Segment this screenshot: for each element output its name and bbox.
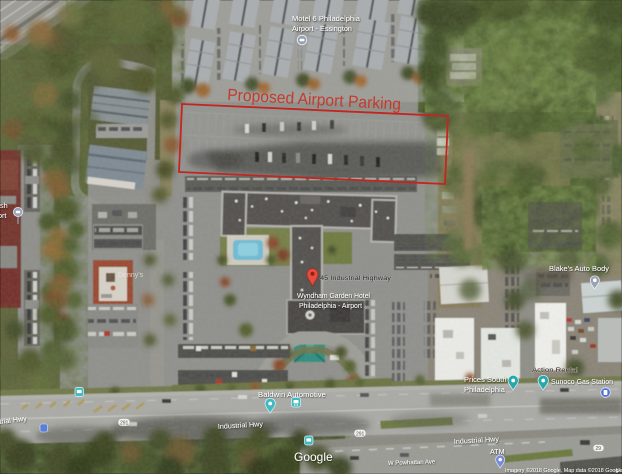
- svg-text:Imagery ©2018 Google, Map data: Imagery ©2018 Google, Map data ©2018 Goo…: [505, 467, 622, 474]
- svg-text:port: port: [0, 211, 6, 220]
- svg-text:Motel 6 Philadelphia: Motel 6 Philadelphia: [292, 14, 361, 23]
- svg-text:Philadelphia - Airport: Philadelphia - Airport: [299, 301, 362, 310]
- svg-text:Philadelphia: Philadelphia: [464, 385, 506, 394]
- svg-text:U: U: [616, 468, 620, 474]
- svg-text:29: 29: [596, 446, 602, 452]
- svg-text:Sunoco Gas Station: Sunoco Gas Station: [551, 377, 613, 386]
- svg-text:ATM: ATM: [490, 447, 505, 456]
- svg-text:Denny's: Denny's: [118, 272, 144, 279]
- svg-text:Blake's Auto Body: Blake's Auto Body: [549, 264, 609, 273]
- svg-text:Google: Google: [294, 450, 333, 464]
- svg-text:Wyndham Garden Hotel: Wyndham Garden Hotel: [297, 291, 370, 300]
- svg-text:Prices South: Prices South: [464, 375, 507, 384]
- svg-text:291: 291: [120, 421, 129, 427]
- svg-text:Airport - Essington: Airport - Essington: [292, 24, 352, 33]
- svg-text:ush: ush: [0, 201, 8, 210]
- svg-text:291: 291: [356, 432, 365, 438]
- svg-text:Action Rental: Action Rental: [532, 367, 579, 374]
- svg-text:45 Industrial Highway: 45 Industrial Highway: [320, 275, 392, 282]
